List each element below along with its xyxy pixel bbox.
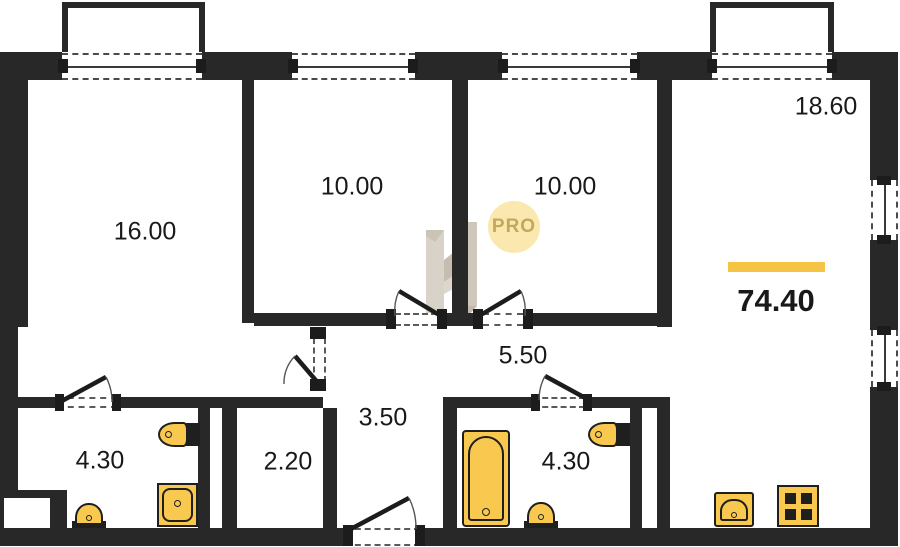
door-post <box>523 309 533 329</box>
wall-cap <box>498 59 508 73</box>
wall-segment <box>0 52 28 327</box>
room-area-label: 2.20 <box>264 448 313 477</box>
wall-segment <box>420 528 898 546</box>
window <box>62 53 202 80</box>
door-opening <box>313 338 326 382</box>
pro-badge: PRO <box>488 201 540 253</box>
room-area-label: 3.50 <box>359 404 408 433</box>
toilet-icon <box>186 423 200 446</box>
door-post <box>473 309 483 329</box>
room-area-label: 16.00 <box>114 218 177 247</box>
wall-cap <box>827 59 837 73</box>
wall-cap <box>408 59 418 73</box>
wall-cap <box>877 176 891 185</box>
wall-niche <box>4 498 50 528</box>
wall-segment <box>657 397 670 528</box>
wall-segment <box>415 52 502 80</box>
wall-segment <box>443 397 457 528</box>
room-area-label: 5.50 <box>499 342 548 371</box>
wall-segment <box>242 80 254 323</box>
wall-segment <box>254 313 395 326</box>
toilet-icon <box>616 423 630 446</box>
sink-icon <box>86 515 92 521</box>
wall-segment <box>117 397 323 408</box>
wall-cap <box>630 59 640 73</box>
door-post <box>112 394 121 411</box>
sink-icon <box>538 514 544 520</box>
wall-cap <box>877 235 891 244</box>
kitchen-sink-icon <box>731 512 737 518</box>
wall-cap <box>288 59 298 73</box>
window <box>871 330 898 387</box>
toilet-icon <box>588 422 618 447</box>
entrance-door-opening <box>345 528 420 546</box>
wall-cap <box>877 326 891 335</box>
wall-segment <box>870 387 898 546</box>
door-opening <box>483 313 523 326</box>
wall-segment <box>523 313 672 326</box>
door-post <box>583 394 592 411</box>
door-opening <box>533 397 585 408</box>
total-area-accent-bar <box>728 262 825 272</box>
window <box>712 53 832 80</box>
room-area-label: 10.00 <box>534 173 597 202</box>
wall-segment <box>870 240 898 330</box>
toilet-icon <box>165 431 172 438</box>
wall-segment <box>0 397 57 408</box>
door-opening <box>57 397 117 408</box>
door-post <box>415 525 425 546</box>
wall-segment <box>870 52 898 180</box>
stove-icon <box>777 485 819 527</box>
wall-segment <box>202 52 292 80</box>
wall-cap <box>196 59 206 73</box>
room-area-label: 4.30 <box>542 448 591 477</box>
door-post <box>531 394 540 411</box>
balcony-outline <box>62 2 205 52</box>
toilet-icon <box>595 431 602 438</box>
floor-plan: PRO <box>0 0 900 547</box>
door-opening <box>395 313 437 326</box>
window <box>292 53 415 80</box>
door-post <box>55 394 64 411</box>
wall-segment <box>657 80 672 327</box>
washing-machine-icon <box>174 500 181 507</box>
door-post <box>310 379 326 391</box>
kitchen-sink-icon <box>714 492 754 527</box>
wall-cap <box>877 382 891 391</box>
window <box>502 53 637 80</box>
bathtub-icon <box>482 508 490 516</box>
room-area-label: 4.30 <box>76 447 125 476</box>
window <box>871 180 898 240</box>
room-area-label: 10.00 <box>321 173 384 202</box>
wall-segment <box>637 52 712 80</box>
wall-segment <box>452 80 468 313</box>
room-area-label: 18.60 <box>795 93 858 122</box>
door-post <box>343 525 353 546</box>
wall-cap <box>58 59 68 73</box>
wall-segment <box>222 408 237 528</box>
wall-segment <box>323 408 337 528</box>
door-post <box>386 309 396 329</box>
door-post <box>437 309 447 329</box>
wall-cap <box>707 59 717 73</box>
door-post <box>310 327 326 339</box>
balcony-outline <box>710 2 834 52</box>
toilet-icon <box>158 422 188 447</box>
sink-icon <box>75 503 103 525</box>
wall-segment <box>630 408 642 528</box>
total-area-label: 74.40 <box>737 283 815 319</box>
